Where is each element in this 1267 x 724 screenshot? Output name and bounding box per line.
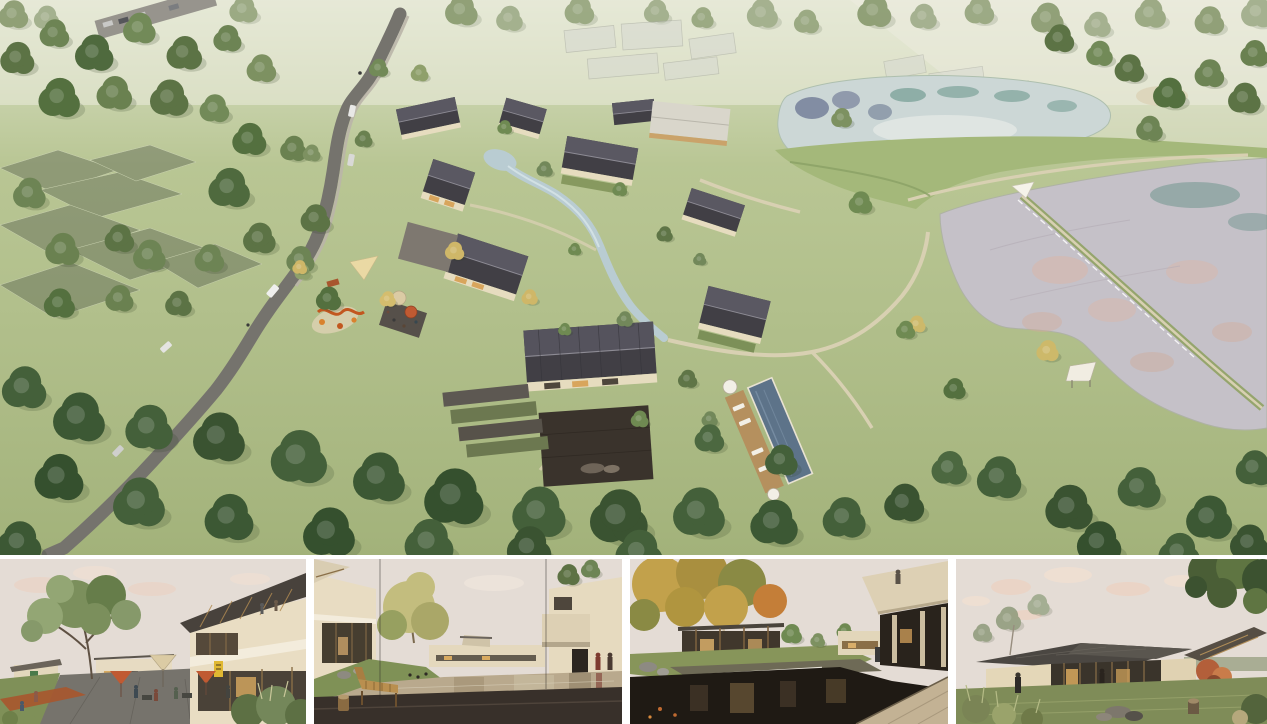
child-figure: [34, 691, 38, 695]
cloud: [464, 575, 524, 591]
main-aerial-figure: [0, 0, 1267, 555]
boulder: [657, 668, 669, 676]
interior-figure: [1100, 669, 1105, 674]
balcony-visitor: [896, 570, 901, 575]
courtyard-pond-render: [314, 559, 622, 724]
standing-figure: [875, 647, 880, 662]
thumbnail-courtyard-pond: [314, 559, 622, 724]
cyclist: [358, 71, 362, 75]
tree-stump: [1188, 698, 1199, 714]
boulder: [639, 662, 657, 672]
street-cafe-render: [0, 559, 306, 724]
lakeside-pavilion-render: [956, 559, 1267, 724]
koi: [658, 707, 662, 711]
thumbnail-lakeside-pavilion: [956, 559, 1267, 724]
thumbnail-waterfall-court: [630, 559, 948, 724]
main-aerial-render: [0, 0, 1267, 555]
house: [612, 99, 656, 125]
rendering-board: [0, 0, 1267, 724]
standing-figure: [1015, 672, 1021, 693]
central-hall: [523, 322, 657, 392]
balcony-figure: [260, 603, 264, 607]
pedestrian: [246, 323, 249, 326]
thumbnail-street-cafe: [0, 559, 306, 724]
thumbnail-row: [0, 559, 1267, 724]
waterfall-court-render: [630, 559, 948, 724]
